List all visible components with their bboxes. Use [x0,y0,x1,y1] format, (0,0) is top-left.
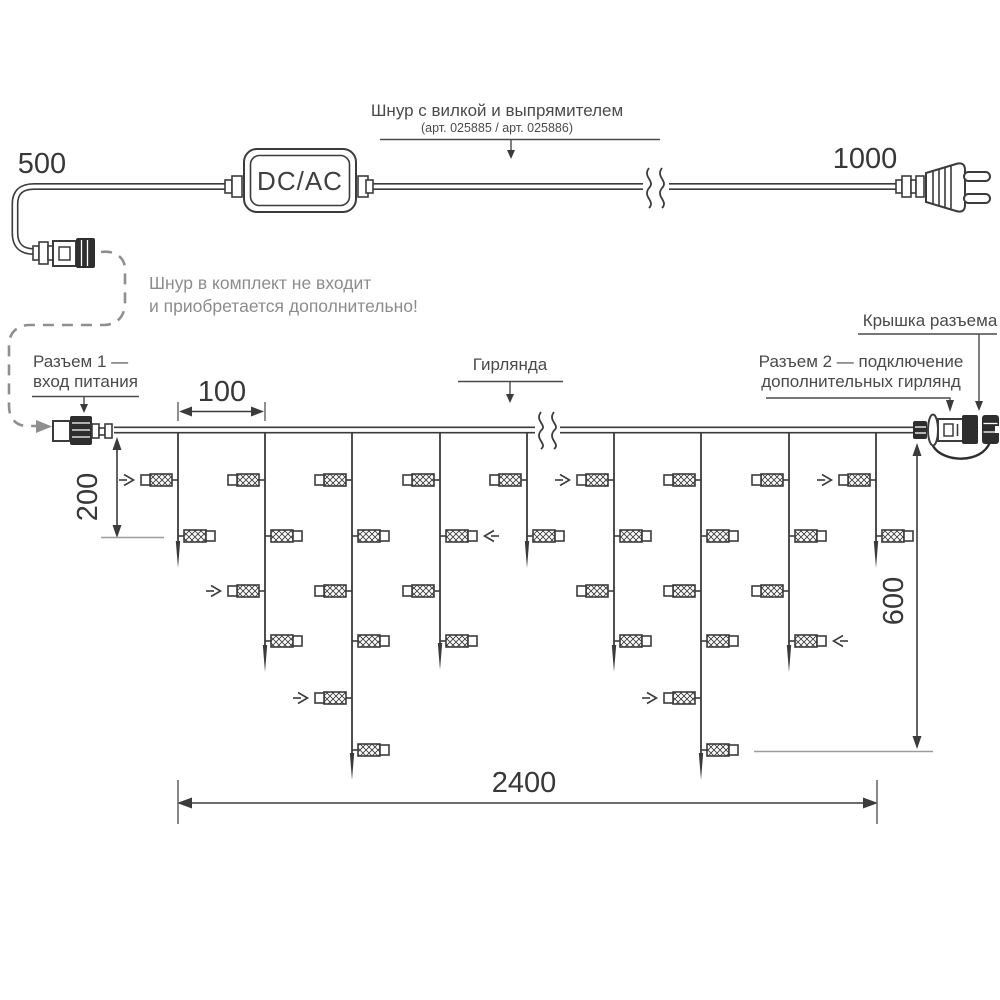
icicle-drop [752,430,848,672]
lamp-body [586,585,608,597]
lamp-body [707,744,729,756]
garland-drops [119,430,913,780]
lamp-body [358,635,380,647]
lamp-body [324,692,346,704]
icicle-drop [490,430,564,568]
adapter-left-nub2 [232,176,242,197]
connector2-black-tip [962,415,978,444]
lamp-body [882,530,904,542]
cap-label: Крышка разъема [863,311,998,330]
lamp-cap [817,531,826,541]
lamp-cap [380,745,389,755]
connector1-callout: Разъем 1 — вход питания [32,352,139,413]
drop-tip [176,541,180,568]
lamp-body [271,530,293,542]
lamp-body [795,530,817,542]
lamp-cap [228,475,237,485]
down-arrow-icon [80,404,88,413]
dim-500-label: 500 [18,148,66,180]
lamp-cap [904,531,913,541]
lamp-cap [315,475,324,485]
unplug-note: Шнур в комплект не входит и приобретаетс… [149,273,418,316]
gray-arrow-icon [36,420,52,433]
lamp-cap [468,531,477,541]
lamp-body [446,635,468,647]
connector1-label-line1: Разъем 1 — [33,352,128,371]
lamp-body [673,692,695,704]
lamp-body [533,530,555,542]
lamp-body [184,530,206,542]
power-cord-label: Шнур с вилкой и выпрямителем [371,101,623,120]
plug-prong-bottom [964,194,990,203]
lamp-cap [380,531,389,541]
lamp-body [446,530,468,542]
lamp-cap [293,636,302,646]
icicle-drop [642,430,738,780]
lamp-cap [293,531,302,541]
art-numbers-label: (арт. 025885 / арт. 025886) [421,121,573,135]
lamp-cap [664,586,673,596]
adapter-right-nub [366,180,373,193]
lamp-body [620,635,642,647]
connector2-label-line2: дополнительных гирлянд [761,372,961,391]
garland-label: Гирлянда [473,355,548,374]
lamp-body [324,474,346,486]
lamp-body [707,530,729,542]
dim-600-label: 600 [878,577,910,625]
lamp-body [586,474,608,486]
down-arrow-icon [975,401,983,411]
power-output-connector [33,238,95,268]
lamp-body [150,474,172,486]
icicle-garland-diagram: Шнур с вилкой и выпрямителем (арт. 02588… [0,0,1000,1000]
icicle-drop [206,430,302,672]
lamp-cap [577,475,586,485]
lamp-cap [315,586,324,596]
dim-1000-label: 1000 [833,143,898,175]
lamp-cap [141,475,150,485]
icicle-drop [555,430,651,672]
lamp-body [412,474,434,486]
lamp-body [324,585,346,597]
lamp-cap [206,531,215,541]
drop-tip [438,643,442,670]
lamp-cap [817,636,826,646]
dim-2400: 2400 [177,767,878,824]
input-connector [53,416,112,445]
connector-black-tip [76,238,95,268]
cable-break-icon [647,168,664,208]
connector1-label-line2: вход питания [33,372,138,391]
lamp-cap [839,475,848,485]
lamp-body [412,585,434,597]
dim-200: 200 [72,437,164,538]
note-line2: и приобретается дополнительно! [149,296,418,316]
drop-tip [612,645,616,672]
lanyard-cord [933,442,990,459]
drop-tip [263,645,267,672]
connector2-label-line1: Разъем 2 — подключение [759,352,964,371]
lamp-cap [380,636,389,646]
lamp-cap [642,636,651,646]
lamp-cap [729,745,738,755]
lamp-cap [468,636,477,646]
down-arrow-icon [507,150,515,159]
lamp-body [358,744,380,756]
drop-tip [350,753,354,780]
power-plug-icon [896,163,990,211]
lamp-cap [752,586,761,596]
lamp-cap [228,586,237,596]
dim-200-label: 200 [72,473,104,521]
plug-prong-top [964,172,990,181]
lamp-body [795,635,817,647]
icicle-drop [119,430,215,568]
lanyard-ring [928,415,938,446]
lamp-body [673,585,695,597]
dcac-adapter: DC/AC [225,149,373,212]
lamp-body [620,530,642,542]
lamp-body [848,474,870,486]
ac-cable [370,168,897,208]
lamp-cap [403,475,412,485]
drop-tip [874,541,878,568]
dcac-label: DC/AC [257,166,343,196]
lamp-body [237,474,259,486]
lamp-body [761,474,783,486]
power-cord-callout: Шнур с вилкой и выпрямителем (арт. 02588… [371,101,660,159]
lamp-body [673,474,695,486]
dim-100: 100 [178,376,265,421]
lamp-cap [752,475,761,485]
connector-cap [982,415,999,444]
dim-100-label: 100 [198,376,246,408]
lamp-cap [664,475,673,485]
icicle-drop [817,430,913,568]
lamp-cap [555,531,564,541]
lamp-cap [403,586,412,596]
lamp-cap [729,531,738,541]
dim-2400-label: 2400 [492,767,557,799]
lamp-body [358,530,380,542]
lamp-body [707,635,729,647]
lamp-cap [490,475,499,485]
drop-tip [699,753,703,780]
lamp-body [271,635,293,647]
dashed-connection-path [9,252,125,433]
drop-tip [525,541,529,568]
lamp-body [499,474,521,486]
down-arrow-icon [506,394,514,403]
lamp-cap [315,693,324,703]
icicle-drop [403,430,499,670]
lamp-cap [577,586,586,596]
lamp-cap [729,636,738,646]
output-connector [913,415,999,459]
icicle-drop [293,430,389,780]
lamp-cap [642,531,651,541]
note-line1: Шнур в комплект не входит [149,273,371,293]
garland-wire [114,412,915,449]
adapter-left-nub [225,180,232,193]
lamp-body [761,585,783,597]
garland-callout: Гирлянда [458,355,563,403]
connector2-callout: Разъем 2 — подключение дополнительных ги… [759,352,964,412]
lamp-cap [664,693,673,703]
drop-tip [787,645,791,672]
down-arrow-icon [946,400,954,412]
diagram-canvas: Шнур с вилкой и выпрямителем (арт. 02588… [0,0,1000,1000]
lamp-body [237,585,259,597]
garland-section: Разъем 1 — вход питания Гирлянда Разъем … [32,311,999,824]
